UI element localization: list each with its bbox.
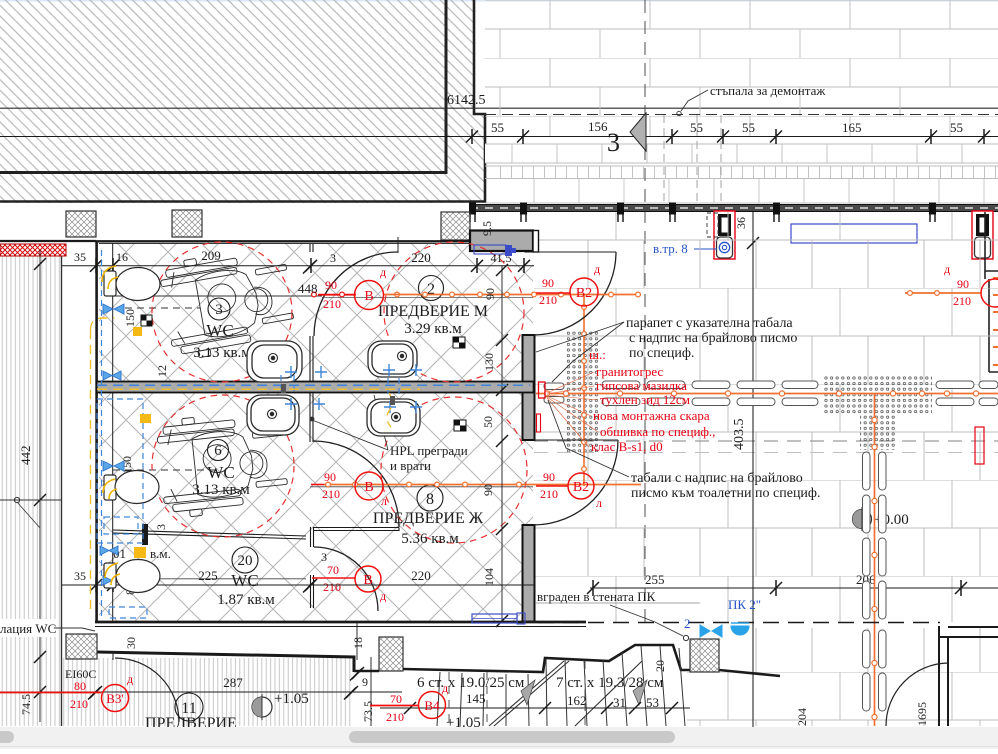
svg-text:В4: В4 xyxy=(424,698,440,713)
svg-text:20: 20 xyxy=(653,660,667,672)
svg-text:6 ст. х 19.0/25 см: 6 ст. х 19.0/25 см xyxy=(417,675,525,691)
svg-text:ПК 2": ПК 2" xyxy=(728,597,761,612)
svg-text:90: 90 xyxy=(957,277,969,291)
svg-text:д: д xyxy=(127,672,133,686)
svg-text:гранитогрес: гранитогрес xyxy=(596,364,663,379)
svg-text:50: 50 xyxy=(481,416,495,428)
svg-text:442: 442 xyxy=(18,446,33,466)
svg-text:210: 210 xyxy=(539,293,557,307)
svg-text:л: л xyxy=(381,494,387,508)
svg-text:210: 210 xyxy=(540,487,558,501)
svg-text:в.м.: в.м. xyxy=(150,546,171,561)
svg-text:3: 3 xyxy=(321,550,327,564)
svg-text:3: 3 xyxy=(154,524,168,530)
svg-text:90: 90 xyxy=(483,288,497,300)
svg-text:д: д xyxy=(380,265,386,279)
svg-text:табали с надпис на брайлово: табали с надпис на брайлово xyxy=(631,471,803,486)
svg-text:В2: В2 xyxy=(576,286,592,301)
svg-text:нова монтажна скара: нова монтажна скара xyxy=(593,408,710,423)
svg-text:д: д xyxy=(944,262,950,276)
svg-text:156: 156 xyxy=(588,119,608,134)
svg-text:55: 55 xyxy=(742,120,755,135)
svg-text:клас B-s1, d0: клас B-s1, d0 xyxy=(591,439,663,454)
svg-text:с надпис на брайлово писмо: с надпис на брайлово писмо xyxy=(629,331,797,346)
svg-text:70: 70 xyxy=(390,692,402,706)
svg-text:9.5: 9.5 xyxy=(480,221,494,236)
svg-text:20: 20 xyxy=(238,553,253,569)
svg-text:2: 2 xyxy=(427,281,435,298)
svg-text:30: 30 xyxy=(124,637,138,649)
svg-text:3: 3 xyxy=(607,128,620,157)
svg-text:90: 90 xyxy=(324,470,336,484)
svg-text:162: 162 xyxy=(567,693,587,708)
svg-text:220: 220 xyxy=(411,250,431,265)
svg-text:55: 55 xyxy=(491,120,504,135)
svg-text:55: 55 xyxy=(950,120,963,135)
svg-text:403.5: 403.5 xyxy=(732,419,747,451)
svg-text:В: В xyxy=(364,480,373,495)
svg-text:В: В xyxy=(364,289,373,304)
svg-text:210: 210 xyxy=(953,294,971,308)
svg-text:гипсова мазилка: гипсова мазилка xyxy=(596,378,687,393)
svg-text:5.36 кв.м: 5.36 кв.м xyxy=(401,531,459,547)
svg-text:70: 70 xyxy=(327,563,339,577)
svg-text:90: 90 xyxy=(542,276,554,290)
svg-text:лация WC: лация WC xyxy=(0,621,56,636)
svg-text:д: д xyxy=(442,681,448,695)
svg-text:3: 3 xyxy=(215,302,223,318)
svg-text:3.29 кв.м: 3.29 кв.м xyxy=(404,321,462,337)
svg-text:448: 448 xyxy=(298,281,318,296)
svg-text:6142.5: 6142.5 xyxy=(447,93,486,108)
svg-text:стъпала за демонтаж: стъпала за демонтаж xyxy=(710,83,826,98)
svg-text:145: 145 xyxy=(466,691,486,706)
svg-text:8: 8 xyxy=(426,491,434,508)
svg-text:писмо към тоалетни по специф.: писмо към тоалетни по специф. xyxy=(631,486,821,501)
svg-text:ш.:: ш.: xyxy=(589,347,606,362)
svg-text:90: 90 xyxy=(543,470,555,484)
svg-text:9: 9 xyxy=(362,675,368,689)
svg-text:В2: В2 xyxy=(573,480,589,495)
svg-text:210: 210 xyxy=(323,297,341,311)
svg-text:7 ст. х 19.3/28 см: 7 ст. х 19.3/28 см xyxy=(556,675,664,691)
svg-text:HPL прегради: HPL прегради xyxy=(390,443,468,458)
svg-text:90: 90 xyxy=(481,484,495,496)
svg-text:220: 220 xyxy=(411,568,431,583)
svg-text:73.5: 73.5 xyxy=(361,701,375,722)
svg-text:255: 255 xyxy=(645,572,665,587)
svg-text:по специф.: по специф. xyxy=(629,346,694,361)
svg-text:210: 210 xyxy=(386,710,404,724)
svg-text:210: 210 xyxy=(70,697,88,711)
svg-text:225: 225 xyxy=(198,568,218,583)
svg-text:287: 287 xyxy=(223,675,243,690)
svg-text:1.87 кв.м: 1.87 кв.м xyxy=(217,592,275,608)
svg-text:55: 55 xyxy=(690,120,703,135)
svg-text:1695: 1695 xyxy=(915,702,929,726)
svg-text:л: л xyxy=(596,496,602,510)
svg-text:16: 16 xyxy=(116,250,128,264)
svg-text:В3': В3' xyxy=(106,691,124,706)
svg-text:210: 210 xyxy=(323,580,341,594)
svg-text:+1.05: +1.05 xyxy=(274,691,309,707)
svg-text:3: 3 xyxy=(330,251,336,265)
svg-text:В: В xyxy=(363,573,372,588)
svg-text:д: д xyxy=(380,589,386,603)
svg-text:WC: WC xyxy=(231,571,258,590)
svg-text:обшивка по специф.,: обшивка по специф., xyxy=(600,424,715,439)
svg-text:35: 35 xyxy=(74,250,86,264)
svg-text:80: 80 xyxy=(74,679,86,693)
svg-text:парапет с указателна табала: парапет с указателна табала xyxy=(626,316,793,331)
svg-text:90: 90 xyxy=(325,278,337,292)
svg-text:WC: WC xyxy=(207,463,234,482)
svg-text:104: 104 xyxy=(482,568,496,586)
svg-text:вграден в стената ПК: вграден в стената ПК xyxy=(537,589,656,604)
svg-text:2: 2 xyxy=(684,616,691,631)
svg-text:130: 130 xyxy=(482,353,496,371)
svg-text:210: 210 xyxy=(322,487,340,501)
svg-text:150: 150 xyxy=(123,309,137,327)
svg-text:и врати: и врати xyxy=(390,458,431,473)
svg-text:165: 165 xyxy=(842,120,862,135)
svg-text:ПРЕДВЕРИЕ Ж: ПРЕДВЕРИЕ Ж xyxy=(373,510,484,527)
svg-text:74.5: 74.5 xyxy=(19,694,33,715)
svg-text:18: 18 xyxy=(351,637,365,649)
svg-text:д: д xyxy=(594,262,600,276)
svg-text:ПРЕДВЕРИЕ М: ПРЕДВЕРИЕ М xyxy=(378,303,488,320)
svg-text:12: 12 xyxy=(155,365,169,377)
svg-text:35: 35 xyxy=(74,569,86,583)
svg-text:204: 204 xyxy=(795,708,809,726)
svg-text:тухлен зид 12см: тухлен зид 12см xyxy=(600,392,690,407)
